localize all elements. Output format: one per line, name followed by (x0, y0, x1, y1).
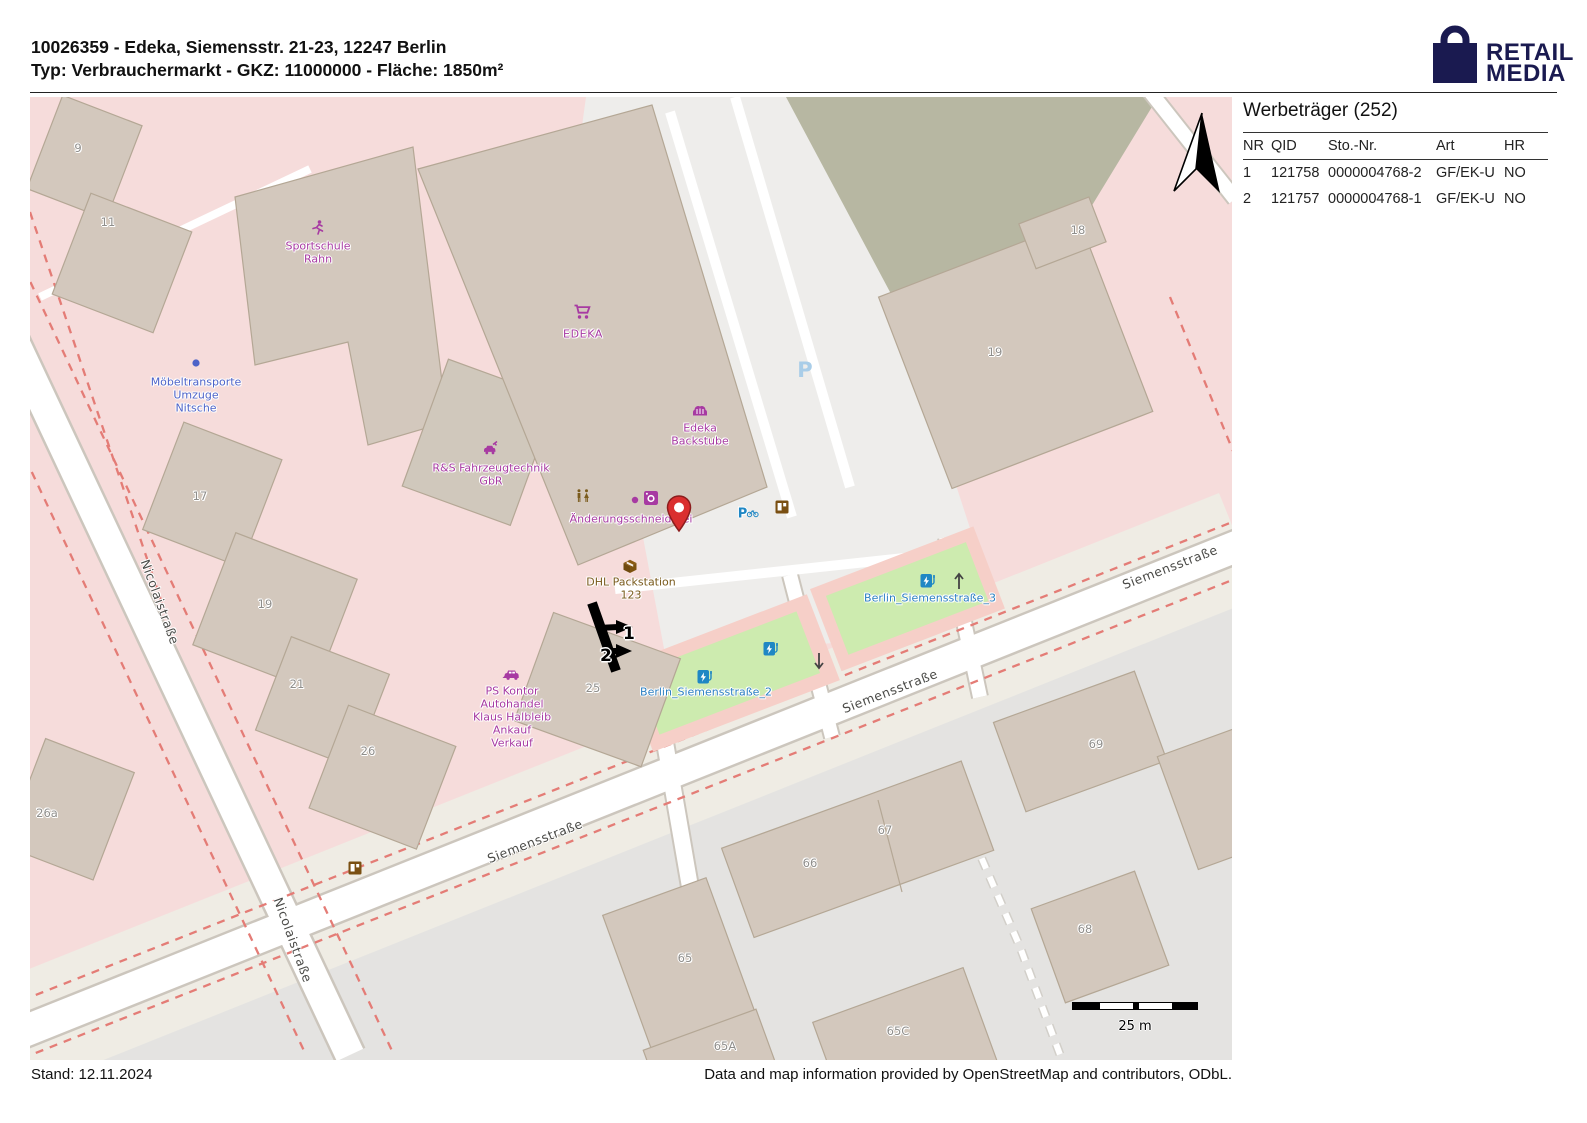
poi-label-pskontor-4: Ankauf (493, 724, 531, 737)
house-number: 67 (878, 823, 893, 837)
poi-label-pskontor-1: PS Kontor (485, 685, 538, 698)
col-header-nr: NR (1243, 138, 1271, 154)
kiosk-icon (775, 500, 789, 514)
poi-label-pskontor-3: Klaus Halbleib (473, 711, 551, 724)
map-canvas: Nicolaistraße Nicolaistraße Siemensstraß… (30, 97, 1232, 1060)
cell-qid: 121757 (1271, 191, 1328, 207)
scale-label: 25 m (1118, 1019, 1151, 1034)
washing-machine-icon (644, 491, 659, 506)
house-number: 19 (258, 597, 273, 611)
running-icon (311, 220, 325, 236)
poi-label-charging-3: Berlin_Siemensstraße_3 (864, 592, 996, 605)
logo-wordmark: RETAIL MEDIA (1486, 42, 1574, 84)
house-number: 19 (988, 345, 1003, 359)
poi-label-pskontor-2: Autohandel (480, 698, 543, 711)
house-number: 9 (74, 141, 81, 155)
office-dot-icon (192, 359, 201, 368)
cell-hr: NO (1504, 191, 1548, 207)
cell-sto-nr: 0000004768-2 (1328, 165, 1436, 181)
parking-bike-icon: P (738, 507, 759, 522)
table-row: 2 121757 0000004768-1 GF/EK-U NO (1243, 186, 1548, 212)
house-number: 68 (1078, 922, 1093, 936)
house-number: 21 (290, 677, 305, 691)
car-icon (503, 668, 522, 681)
poi-label-moebeltransporte: Möbeltransporte (151, 376, 242, 389)
house-number: 65 (678, 951, 693, 965)
cell-hr: NO (1504, 165, 1548, 181)
poi-label-sportschule: Sportschule (285, 240, 350, 253)
poi-label-edeka-backstube-2: Backstube (671, 435, 728, 448)
poi-label-edeka: EDEKA (563, 328, 603, 341)
house-number: 25 (586, 681, 601, 695)
car-repair-icon (482, 441, 500, 456)
restroom-icon (575, 489, 591, 503)
house-number: 66 (803, 856, 818, 870)
header-divider (30, 92, 1557, 93)
col-header-sto-nr: Sto.-Nr. (1328, 138, 1436, 154)
stand-date: Stand: 12.11.2024 (31, 1066, 153, 1083)
col-header-art: Art (1436, 138, 1504, 154)
cell-art: GF/EK-U (1436, 191, 1504, 207)
dhl-package-icon (622, 558, 639, 574)
poi-label-charging-2: Berlin_Siemensstraße_2 (640, 686, 772, 699)
poi-label-sportschule-2: Rahn (304, 253, 332, 266)
scale-bar (1072, 1002, 1198, 1010)
kiosk-icon (348, 861, 362, 875)
ev-charging-icon (920, 573, 936, 589)
store-subtitle: Typ: Verbrauchermarkt - GKZ: 11000000 - … (31, 59, 503, 82)
poi-label-edeka-backstube-1: Edeka (683, 422, 717, 435)
cell-qid: 121758 (1271, 165, 1328, 181)
poi-label-dhl-packstation: DHL Packstation (586, 576, 676, 589)
werbetraeger-table: NR QID Sto.-Nr. Art HR 1 121758 00000047… (1243, 132, 1548, 212)
bread-icon (691, 404, 709, 417)
map-attribution: Data and map information provided by Ope… (704, 1066, 1232, 1083)
ev-charging-icon (697, 669, 713, 685)
poi-label-fahrzeugtechnik-2: GbR (479, 475, 502, 488)
marker-label-1: 1 (623, 624, 635, 644)
panel-title: Werbeträger (252) (1243, 100, 1563, 122)
marker-label-2: 2 (600, 646, 612, 666)
poi-dot-icon (631, 496, 639, 504)
house-number: 26a (36, 806, 58, 820)
col-header-qid: QID (1271, 138, 1328, 154)
cell-nr: 1 (1243, 165, 1271, 181)
store-title: 10026359 - Edeka, Siemensstr. 21-23, 122… (31, 36, 503, 59)
cell-nr: 2 (1243, 191, 1271, 207)
poi-label-nitsche: Nitsche (175, 402, 216, 415)
parking-icon: P (797, 358, 812, 382)
ev-charging-icon (763, 641, 779, 657)
poi-label-pskontor-5: Verkauf (491, 737, 533, 750)
table-row: 1 121758 0000004768-2 GF/EK-U NO (1243, 160, 1548, 186)
shopping-bag-icon (1430, 24, 1480, 84)
shopping-cart-icon (574, 304, 593, 320)
house-number: 18 (1071, 223, 1086, 237)
page-title: 10026359 - Edeka, Siemensstr. 21-23, 122… (31, 36, 503, 82)
house-number: 17 (193, 489, 208, 503)
report-page: 10026359 - Edeka, Siemensstr. 21-23, 122… (0, 0, 1587, 1123)
house-number: 65C (887, 1024, 910, 1038)
poi-label-dhl-123: 123 (621, 589, 642, 602)
poi-label-fahrzeugtechnik: R&S Fahrzeugtechnik (432, 462, 549, 475)
col-header-hr: HR (1504, 138, 1548, 154)
location-pin-icon (666, 495, 692, 533)
werbetraeger-panel: Werbeträger (252) NR QID Sto.-Nr. Art HR… (1243, 100, 1563, 212)
logo-line-2: MEDIA (1486, 63, 1574, 84)
poi-label-umzuge: Umzuge (173, 389, 218, 402)
table-header-row: NR QID Sto.-Nr. Art HR (1243, 132, 1548, 160)
house-number: 26 (361, 744, 376, 758)
cell-art: GF/EK-U (1436, 165, 1504, 181)
retail-media-logo: RETAIL MEDIA (1430, 24, 1574, 84)
cell-sto-nr: 0000004768-1 (1328, 191, 1436, 207)
house-number: 11 (101, 215, 116, 229)
house-number: 69 (1089, 737, 1104, 751)
house-number: 65A (714, 1039, 737, 1053)
